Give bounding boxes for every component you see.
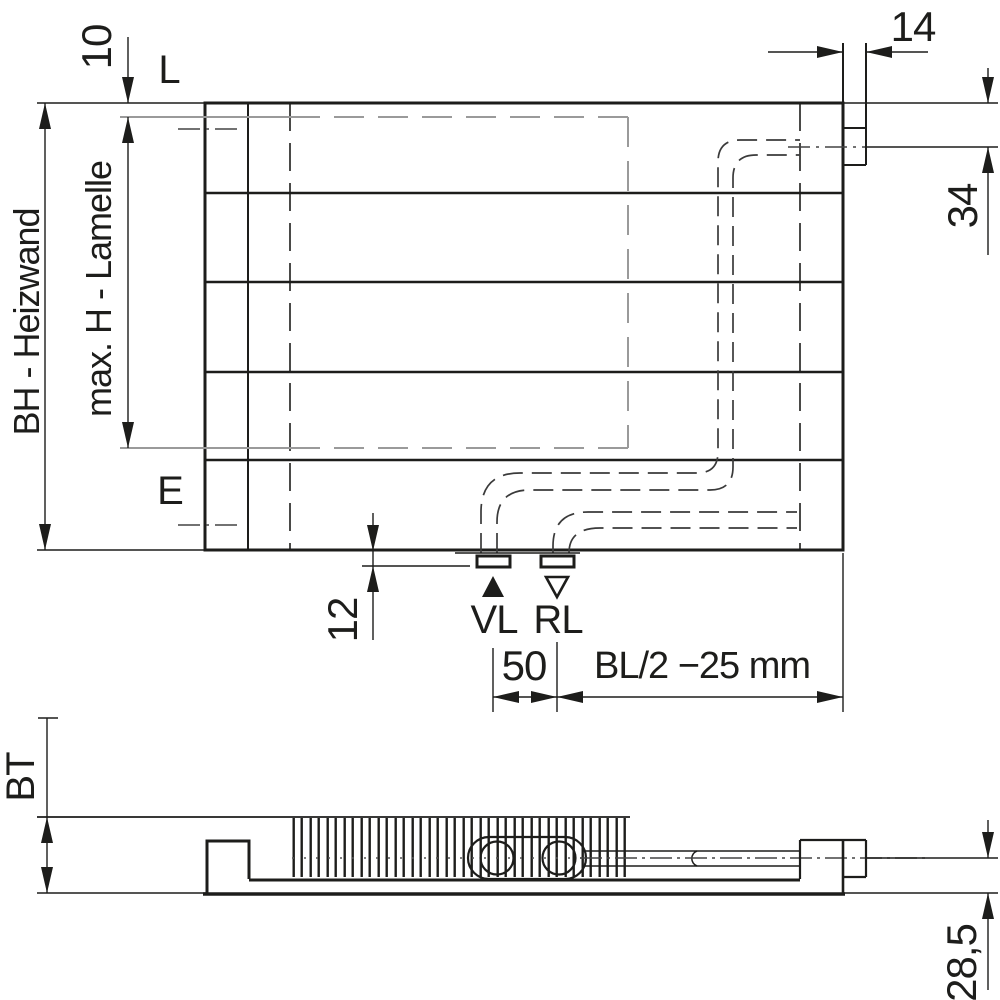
dim-stub-drop: 12 [322,598,364,643]
dim-panel-height: BH - Heizwand [9,208,45,435]
dim-connection-to-edge: BL/2 −25 mm [594,647,810,685]
drawing-linework [0,0,1000,1000]
supply-pipe-vl [481,140,800,553]
return-pipe-rl [553,512,797,553]
radiator-technical-drawing: 10 L 14 34 BH - Heizwand max. H - Lamell… [0,0,1000,1000]
dim-connection-from-top: 34 [942,184,984,229]
end-fitting [800,840,866,893]
bottom-section-view [37,718,998,990]
dim-lamelle-top-offset: 10 [76,25,118,70]
panel-outline [205,103,843,550]
lamella-fins [291,818,629,877]
dimension-lines [37,37,998,712]
dim-vent-tab-width: 14 [891,6,936,48]
rl-return-triangle [546,577,568,597]
return-label: RL [533,600,582,640]
dim-build-depth: BT [1,752,41,801]
air-vent-level-label: L [158,50,179,90]
flow-markers [482,576,568,597]
centerlines [178,129,866,525]
supply-label: VL [471,600,518,640]
drain-level-label: E [157,471,183,511]
front-view [37,37,998,712]
dim-vl-rl-spacing: 50 [502,645,547,687]
dim-pipe-center-to-wall: 28,5 [941,924,983,1000]
dim-max-lamelle-height: max. H - Lamelle [81,161,117,417]
connection-stubs [455,553,580,567]
vl-supply-triangle [482,576,504,597]
